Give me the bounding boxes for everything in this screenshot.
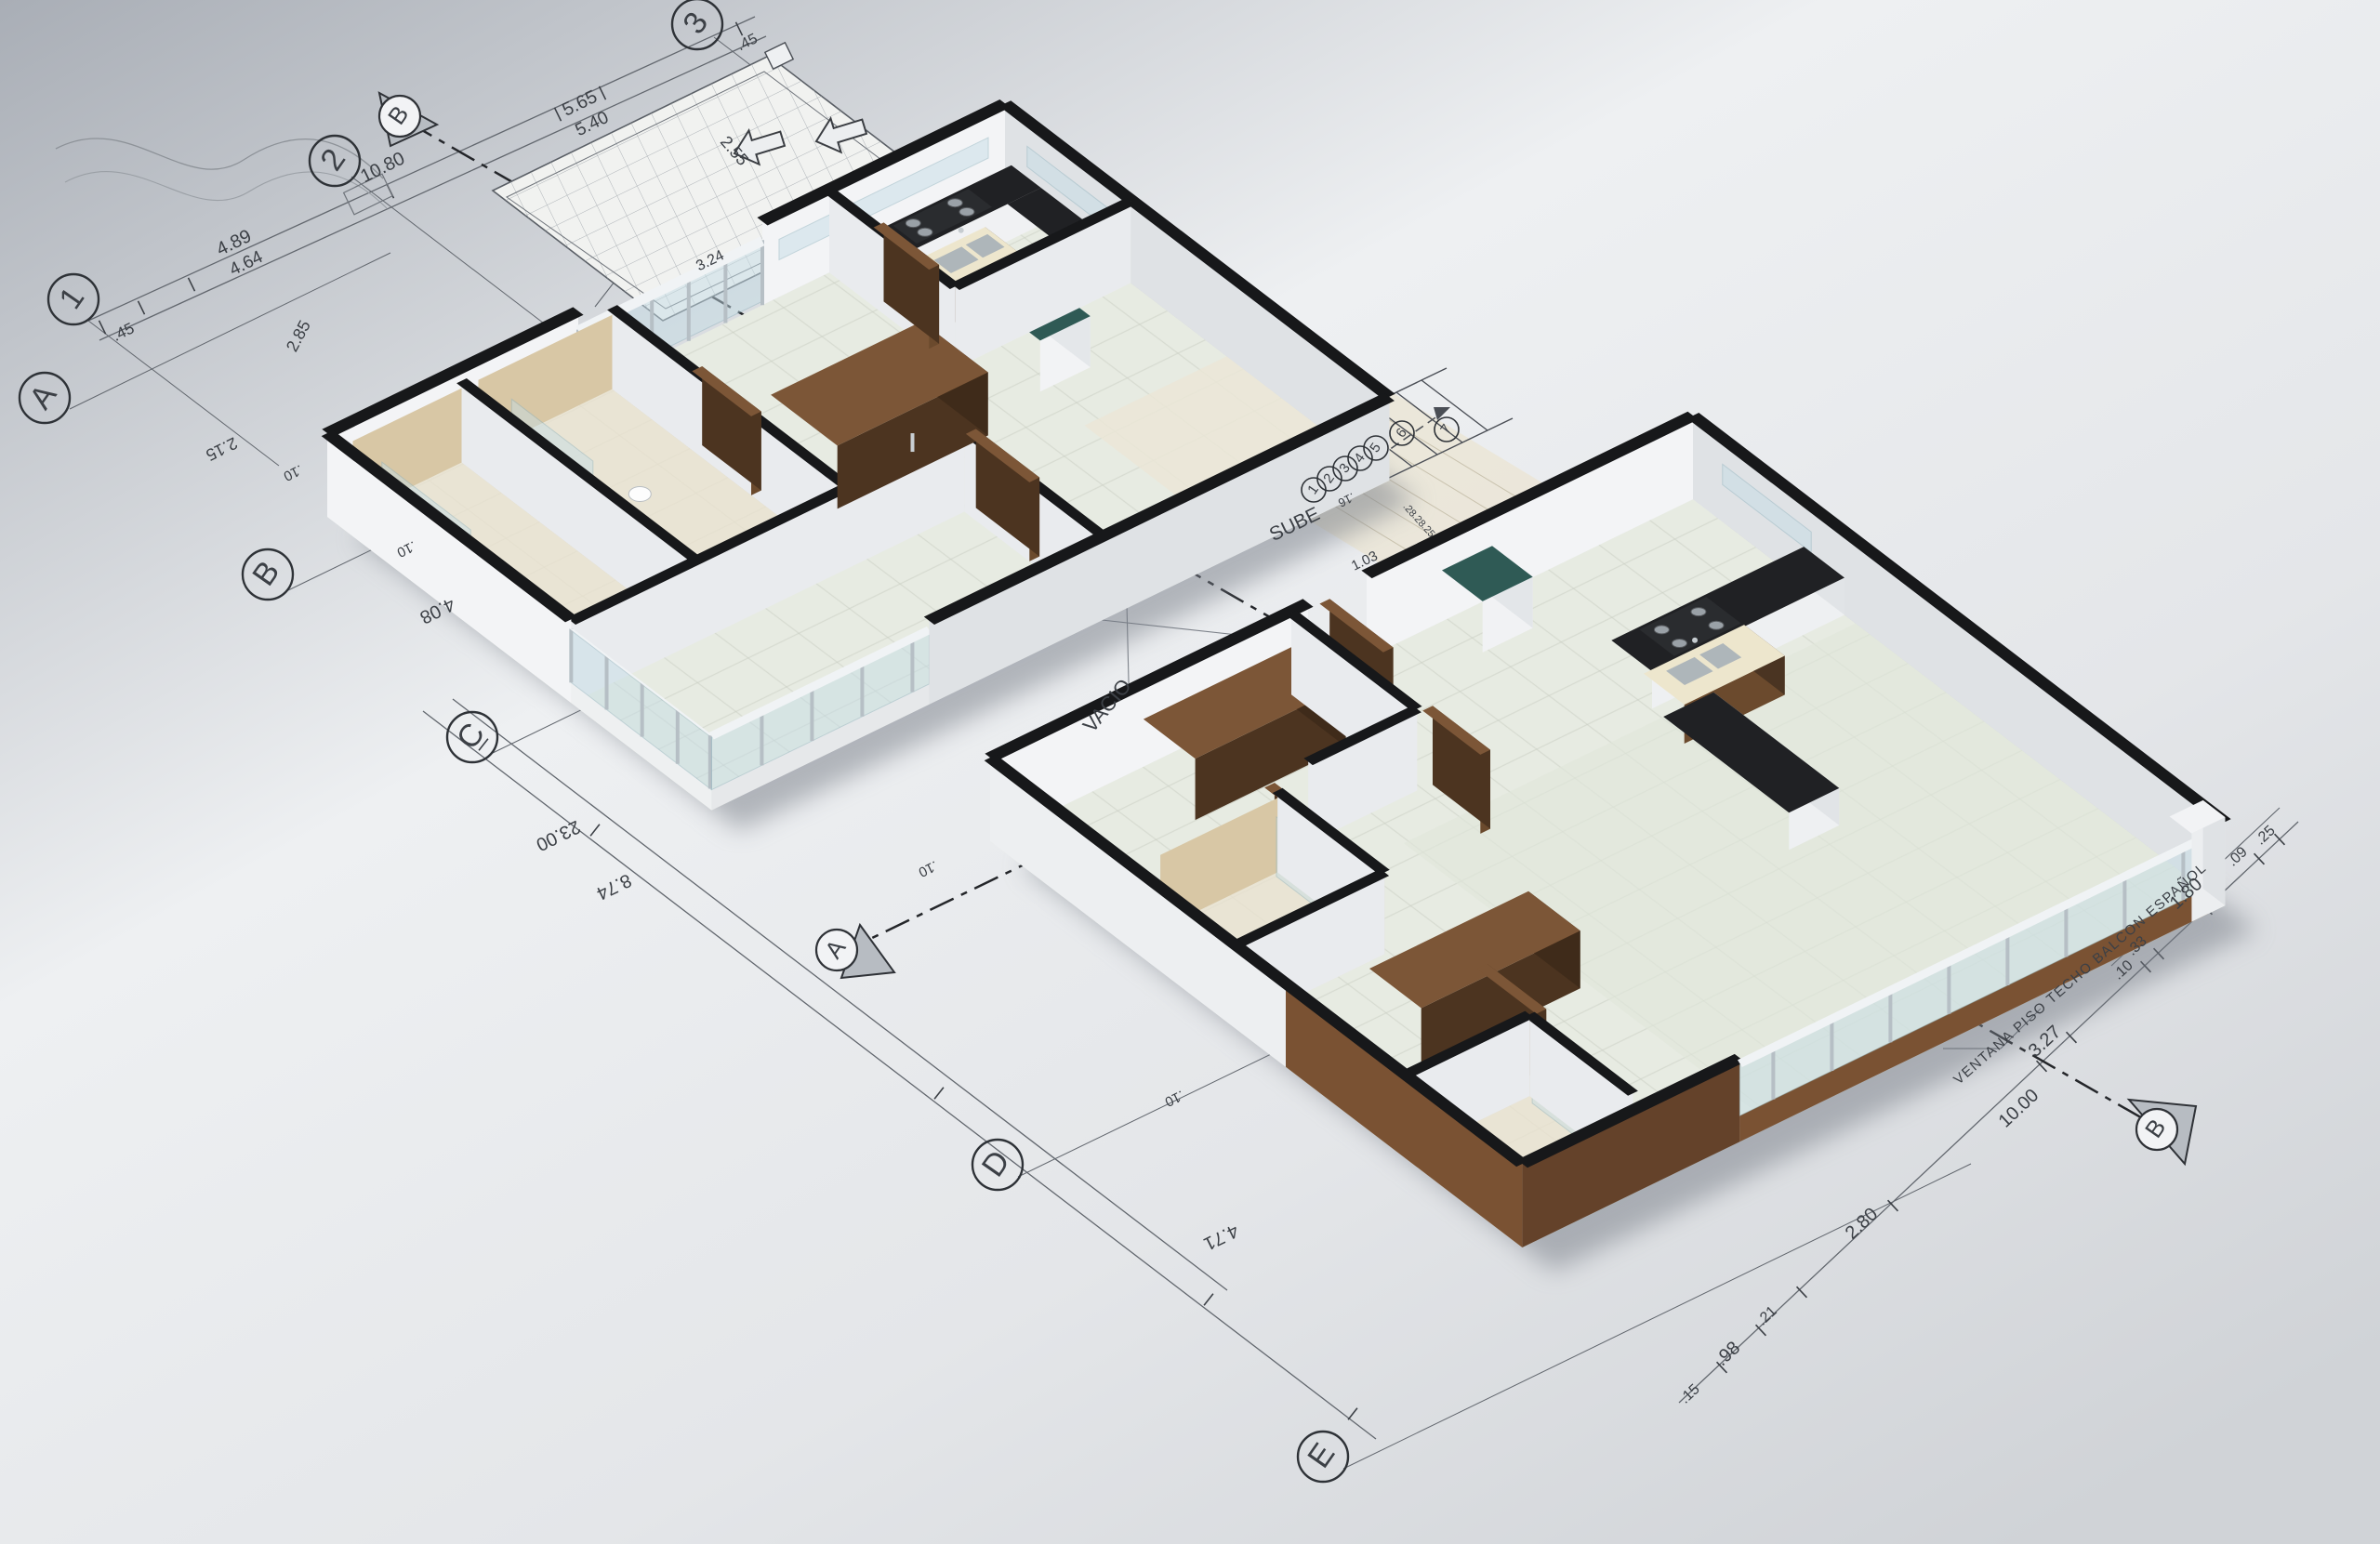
railing-post [760,240,764,305]
scene-svg: 123ABCDE1234567BAB.454.894.6410.805.655.… [0,0,2380,1544]
stove-burner [959,207,974,216]
stove-burner [1691,608,1706,616]
railing-post [760,711,763,765]
railing-post [910,639,914,693]
railing-post [810,687,813,741]
railing-post [569,628,573,682]
railing-post [605,655,609,709]
railing-post [641,683,644,737]
stove-burner [947,199,962,207]
railing-post [676,710,680,764]
railing-post [2122,877,2126,929]
washbasin [628,486,651,501]
railing-post [687,276,691,341]
railing-post [860,663,864,717]
stove-burner [906,219,920,228]
railing-post [1888,990,1892,1042]
railing-post [1947,962,1950,1014]
wardrobe-handle [910,433,914,452]
faucet [1692,638,1698,643]
stove-burner [1672,640,1686,648]
stove-burner [1709,621,1724,629]
faucet [959,228,964,233]
stove-burner [918,228,932,236]
railing-post [1771,1048,1775,1100]
blueprint-3d-floorplan: 123ABCDE1234567BAB.454.894.6410.805.655.… [0,0,2380,1544]
stove-burner [1654,626,1669,634]
railing-post [2064,904,2068,957]
railing-post [1830,1019,1833,1071]
railing-post [723,258,727,323]
railing-post [2005,933,2009,985]
